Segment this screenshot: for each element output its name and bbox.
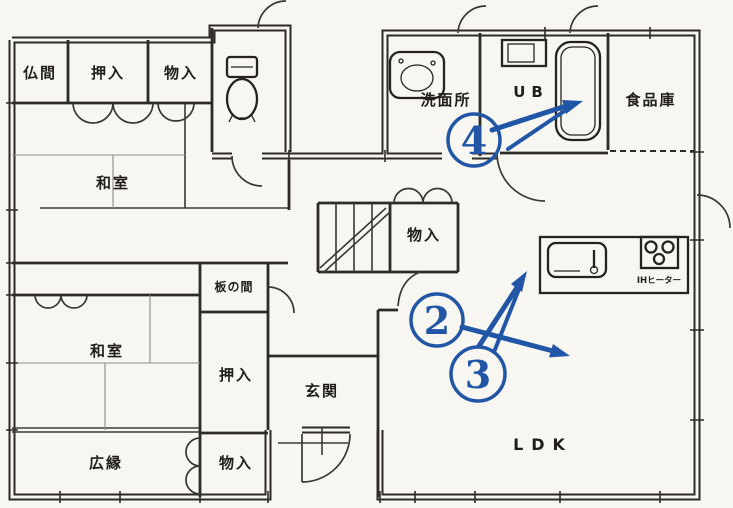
annotation-4-number: 4 <box>461 118 487 163</box>
ldk-right-door-arc <box>697 195 730 228</box>
toilet-icon <box>227 57 257 122</box>
label-itanoma: 板の間 <box>214 279 253 294</box>
label-unit-bath: UB <box>513 83 549 101</box>
hall-ldk-door-arc <box>497 153 545 201</box>
label-oshiire-btm: 押入 <box>219 366 253 384</box>
label-senmenjo: 洗面所 <box>420 91 471 109</box>
kitchen-sink-icon <box>548 243 606 277</box>
annotation-4: 4 <box>448 100 583 166</box>
itanoma-door-arc <box>268 287 294 313</box>
floor-plan-scan: 仏間 押入 物入 和室 洗面所 UB 食品庫 物入 板の間 和室 押入 玄関 広… <box>0 0 733 508</box>
entrance-door-arc <box>302 434 350 482</box>
room-labels: 仏間 押入 物入 和室 洗面所 UB 食品庫 物入 板の間 和室 押入 玄関 広… <box>23 64 681 472</box>
label-monoire-top: 物入 <box>164 64 198 82</box>
label-washitsu-top: 和室 <box>96 174 130 192</box>
label-ih-heater: IHヒーター <box>637 275 681 286</box>
label-genkan: 玄関 <box>305 382 339 400</box>
fusuma-arcs-top <box>73 103 194 123</box>
stove-icon <box>641 237 678 268</box>
label-monoire-mid: 物入 <box>407 226 441 244</box>
label-oshiire-top: 押入 <box>91 64 125 82</box>
hiroen-double-door <box>186 438 200 494</box>
annotation-3-number: 3 <box>465 352 491 397</box>
washroom-exterior-door-arc <box>458 6 486 33</box>
label-butsuma: 仏間 <box>23 64 57 82</box>
closet-double-door <box>394 189 452 204</box>
bath-exterior-door-arc <box>570 6 598 33</box>
hall-door-arc <box>398 272 420 306</box>
label-washitsu-btm: 和室 <box>90 342 124 360</box>
wc-exterior-door-arc <box>258 1 286 28</box>
annotation-2-number: 2 <box>424 298 450 343</box>
wc-door-arc <box>232 156 262 186</box>
label-hiroen: 広縁 <box>89 454 123 472</box>
stairs <box>320 203 390 272</box>
annotation-2-arrow-head <box>549 344 570 357</box>
label-monoire-btm: 物入 <box>219 454 253 472</box>
label-ldk: LDK <box>513 435 573 454</box>
label-pantry: 食品庫 <box>625 91 676 109</box>
fusuma-arcs-bottom <box>35 295 87 308</box>
